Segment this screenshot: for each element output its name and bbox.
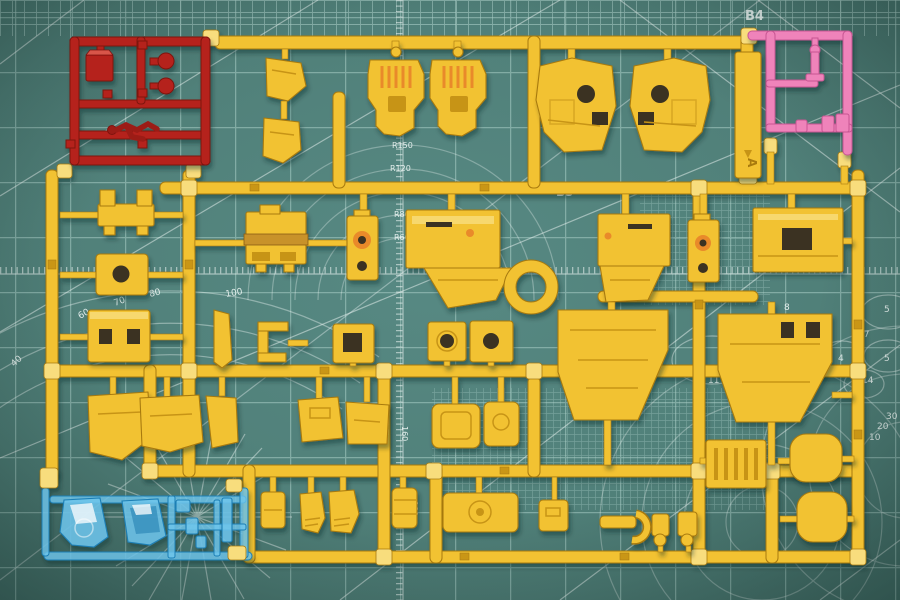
scene-canvas: B4B5R150R120R100R80R60100807060401601804… <box>0 0 900 600</box>
part-canopy-2 <box>122 499 166 545</box>
part-body-shell-left <box>536 49 616 152</box>
runner-letter-tag: A <box>745 158 759 168</box>
blue-yellow-connector <box>228 546 246 560</box>
part-square-frame-2 <box>428 322 466 366</box>
part-square-frame-1 <box>333 324 374 366</box>
part-red-block <box>86 46 113 81</box>
part-tag-strip: A <box>735 52 761 178</box>
part-small-blade <box>214 310 232 368</box>
model-kit-sprue-photo: B4B5R150R120R100R80R60100807060401601804… <box>0 0 900 600</box>
part-square-frame-3 <box>470 321 513 366</box>
part-vent-block <box>700 440 766 488</box>
blue-yellow-connector <box>226 479 242 492</box>
part-body-shell-right <box>630 49 710 152</box>
blue-yellow-connector <box>40 468 58 488</box>
part-canopy-1 <box>60 498 108 547</box>
